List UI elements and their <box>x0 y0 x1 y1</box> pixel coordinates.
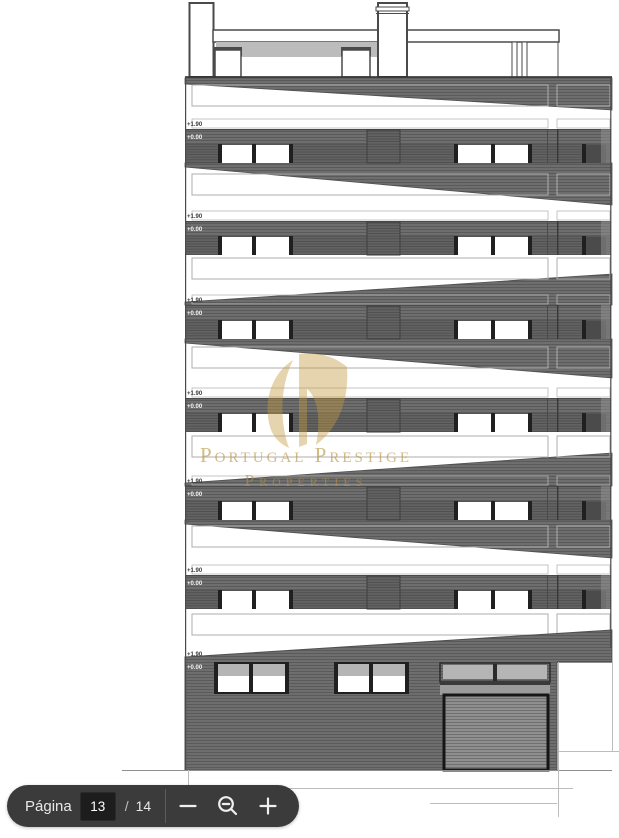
window <box>222 502 252 520</box>
zoom-in-button[interactable] <box>248 786 288 826</box>
ground-floor: +1.90 +0.00 <box>185 630 612 770</box>
level-label-upper: +1.90 <box>187 568 203 574</box>
vent-panel <box>367 222 400 255</box>
window <box>458 591 491 609</box>
plus-icon <box>257 795 279 817</box>
window <box>458 321 491 339</box>
window <box>222 237 252 255</box>
window <box>256 502 289 520</box>
window <box>222 321 252 339</box>
vent-panel <box>367 306 400 339</box>
window <box>218 664 249 676</box>
window <box>458 414 491 432</box>
level-label-lower: +0.00 <box>187 404 203 410</box>
level-label-upper: +1.90 <box>187 652 203 658</box>
window <box>495 414 528 432</box>
level-label-upper: +1.90 <box>187 298 203 304</box>
window <box>338 664 369 676</box>
roof-chimney-center <box>378 3 407 77</box>
window <box>495 591 528 609</box>
vent-panel <box>367 487 400 520</box>
window <box>458 502 491 520</box>
page-label: Página <box>25 798 72 815</box>
level-label-upper: +1.90 <box>187 122 203 128</box>
window <box>222 145 252 163</box>
window <box>495 237 528 255</box>
window <box>373 664 405 676</box>
page-toolbar: Página / 14 <box>7 785 299 827</box>
window <box>256 591 289 609</box>
level-label-upper: +1.90 <box>187 214 203 220</box>
roof-chimney-left <box>190 3 214 77</box>
window <box>458 145 491 163</box>
window <box>256 145 289 163</box>
window <box>495 321 528 339</box>
vent-panel <box>367 399 400 432</box>
window <box>222 591 252 609</box>
zoom-out-button[interactable] <box>168 786 208 826</box>
zoom-mode-button[interactable] <box>208 786 248 826</box>
magnifier-minus-icon <box>216 794 240 818</box>
pergola-post <box>522 42 527 78</box>
level-label-lower: +0.00 <box>187 492 203 498</box>
level-label-lower: +0.00 <box>187 665 203 671</box>
window <box>256 414 289 432</box>
level-label-lower: +0.00 <box>187 311 203 317</box>
elevation-drawing: +1.90 +0.00 +1.90 +0.00 +1.90 <box>0 0 619 838</box>
page-separator: / <box>125 798 129 814</box>
roof-door <box>342 50 370 77</box>
garage-door <box>444 695 548 770</box>
page-number-input[interactable] <box>80 792 116 821</box>
pergola-post <box>512 42 517 78</box>
level-label-lower: +0.00 <box>187 227 203 233</box>
vent-panel <box>367 130 400 163</box>
window <box>495 502 528 520</box>
minus-icon <box>177 795 199 817</box>
toolbar-divider <box>165 789 166 823</box>
roof-door <box>215 50 241 77</box>
level-label-lower: +0.00 <box>187 581 203 587</box>
level-label-upper: +1.90 <box>187 391 203 397</box>
vent-panel <box>367 576 400 609</box>
chimney-cap <box>376 7 409 11</box>
window <box>253 664 285 676</box>
total-pages: 14 <box>136 798 152 814</box>
window <box>495 145 528 163</box>
window <box>222 414 252 432</box>
window <box>458 237 491 255</box>
level-label-lower: +0.00 <box>187 135 203 141</box>
window <box>256 321 289 339</box>
level-label-upper: +1.90 <box>187 479 203 485</box>
window <box>256 237 289 255</box>
roof-structures <box>190 3 560 78</box>
